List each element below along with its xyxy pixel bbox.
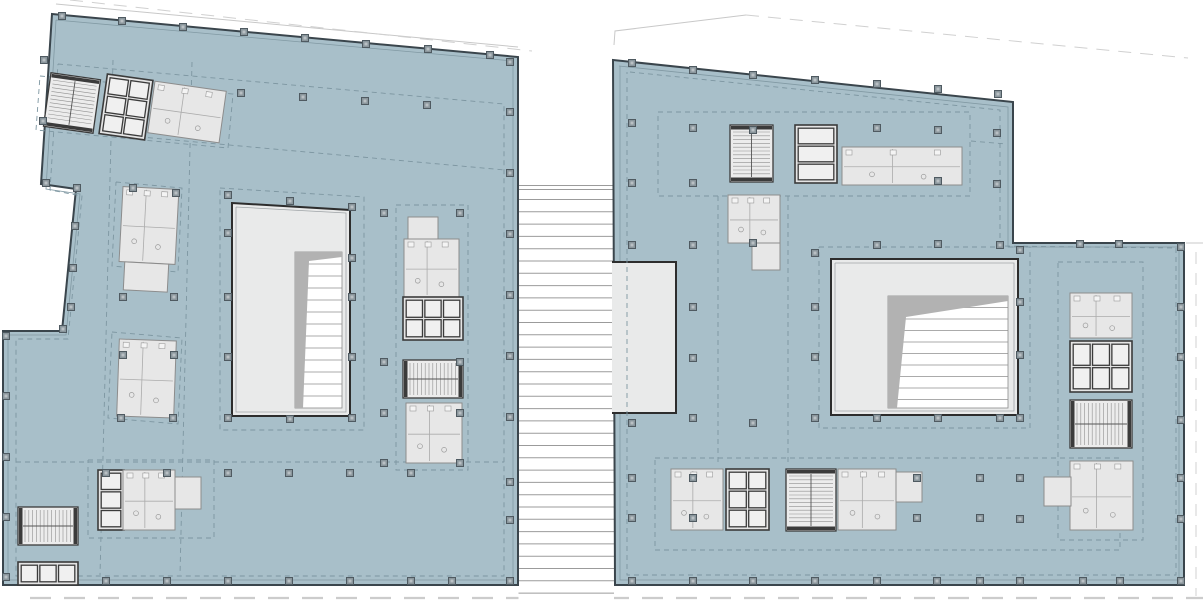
column-center: [997, 93, 1000, 96]
elevator-cab: [798, 164, 834, 180]
column-center: [692, 477, 695, 480]
column-center: [692, 69, 695, 72]
column-center: [426, 104, 429, 107]
restroom-core: [1070, 461, 1133, 530]
column-center: [5, 576, 8, 579]
fixture: [1074, 464, 1080, 469]
column-center: [509, 111, 512, 114]
column-center: [1019, 301, 1022, 304]
elevator-cab: [1093, 368, 1110, 389]
column-center: [1180, 580, 1183, 583]
elevator-cab: [123, 118, 144, 137]
column-center: [173, 296, 176, 299]
column-center: [814, 417, 817, 420]
column-center: [105, 472, 108, 475]
restroom-outline: [117, 339, 177, 418]
elevator-cab: [425, 300, 441, 317]
elevator-cab: [1112, 368, 1129, 389]
column-center: [120, 417, 123, 420]
column-center: [1180, 356, 1183, 359]
column-center: [752, 242, 755, 245]
column-center: [692, 517, 695, 520]
floor-plan-drawing: [0, 0, 1203, 602]
elevator-cab: [1093, 344, 1110, 365]
restroom-outline: [842, 147, 962, 185]
column-center: [459, 212, 462, 215]
stair-band-field: [519, 185, 615, 602]
elevator-cab: [1073, 344, 1090, 365]
restroom-core: [1070, 293, 1132, 338]
column-center: [62, 328, 65, 331]
elevator-cab: [129, 81, 150, 100]
column-center: [304, 37, 307, 40]
column-center: [459, 412, 462, 415]
column-center: [631, 517, 634, 520]
elevator-cab: [798, 128, 834, 144]
column-center: [227, 580, 230, 583]
elevator-core: [403, 297, 463, 340]
fixture: [445, 406, 451, 411]
column-center: [70, 306, 73, 309]
column-center: [876, 83, 879, 86]
room-block: [175, 477, 201, 509]
column-center: [509, 172, 512, 175]
column-center: [999, 244, 1002, 247]
column-center: [172, 417, 175, 420]
column-center: [166, 472, 169, 475]
column-center: [227, 417, 230, 420]
column-center: [166, 580, 169, 583]
restroom-core: [404, 239, 459, 297]
fixture: [1114, 296, 1120, 301]
elevator-cab: [444, 300, 460, 317]
fixture: [879, 472, 885, 477]
room-block: [123, 262, 168, 292]
column-center: [876, 244, 879, 247]
restroom-core: [117, 339, 177, 418]
stair-landing-bar: [731, 178, 772, 182]
column-center: [240, 92, 243, 95]
column-center: [1019, 417, 1022, 420]
stair-landing-bar: [74, 508, 78, 544]
elevator-cab: [444, 320, 460, 337]
column-center: [509, 61, 512, 64]
column-center: [351, 417, 354, 420]
fixture: [934, 150, 940, 155]
fixture: [141, 343, 147, 348]
column-center: [289, 200, 292, 203]
column-center: [692, 357, 695, 360]
column-center: [349, 580, 352, 583]
column-center: [1119, 580, 1122, 583]
restroom-core: [728, 195, 780, 243]
fixture: [890, 150, 896, 155]
column-center: [752, 129, 755, 132]
column-center: [5, 395, 8, 398]
fixture: [1115, 464, 1121, 469]
column-center: [132, 187, 135, 190]
restroom-core: [119, 187, 179, 265]
stair-landing-bar: [404, 361, 408, 397]
elevator-core: [726, 469, 769, 530]
atrium-void: [232, 203, 350, 416]
elevator-cab: [729, 491, 746, 508]
column-center: [5, 335, 8, 338]
column-center: [351, 296, 354, 299]
elevator-cab: [1073, 368, 1090, 389]
fixture: [707, 472, 713, 477]
column-center: [509, 481, 512, 484]
restroom-core: [123, 470, 175, 530]
stair-core: [1070, 400, 1132, 448]
elevator-core: [18, 562, 78, 585]
elevator-core: [98, 470, 124, 530]
column-center: [1019, 518, 1022, 521]
room-block: [408, 217, 438, 239]
stair-landing-bar: [787, 470, 835, 474]
fixture: [846, 150, 852, 155]
elevator-cab: [798, 146, 834, 162]
restroom-outline: [406, 403, 462, 463]
fixture: [162, 192, 168, 197]
column-center: [45, 182, 48, 185]
elevator-cab: [749, 472, 766, 489]
elevator-cab: [406, 300, 422, 317]
column-center: [692, 182, 695, 185]
elevator-cab: [749, 491, 766, 508]
column-center: [451, 580, 454, 583]
fixture: [1094, 296, 1100, 301]
room-outline: [408, 217, 438, 239]
column-center: [351, 356, 354, 359]
elevator-cab: [101, 511, 121, 527]
stair-core: [403, 360, 463, 398]
column-center: [365, 43, 368, 46]
column-center: [1019, 249, 1022, 252]
fixture: [442, 242, 448, 247]
column-center: [1180, 518, 1183, 521]
floor-plan-canvas: [0, 0, 1203, 602]
column-center: [631, 477, 634, 480]
column-center: [631, 182, 634, 185]
elevator-core: [99, 74, 153, 140]
fixture: [127, 473, 133, 478]
column-center: [996, 183, 999, 186]
column-center: [459, 361, 462, 364]
fixture: [860, 472, 866, 477]
elevator-cab: [21, 565, 37, 582]
column-center: [692, 244, 695, 247]
column-center: [227, 356, 230, 359]
fixture: [764, 198, 770, 203]
room-outline: [123, 262, 168, 292]
fixture: [206, 91, 213, 97]
stair-landing-bar: [1128, 401, 1132, 447]
column-center: [288, 580, 291, 583]
elevator-cab: [729, 510, 746, 527]
column-center: [122, 296, 125, 299]
column-center: [364, 100, 367, 103]
room-outline: [1044, 477, 1071, 506]
restroom-core: [148, 81, 227, 143]
atrium-void: [831, 259, 1018, 415]
column-center: [814, 252, 817, 255]
column-center: [752, 422, 755, 425]
column-center: [105, 580, 108, 583]
fixture: [748, 198, 754, 203]
column-center: [227, 472, 230, 475]
column-center: [876, 127, 879, 130]
restroom-outline: [838, 469, 896, 530]
column-center: [410, 580, 413, 583]
column-center: [227, 232, 230, 235]
column-center: [42, 120, 45, 123]
column-center: [509, 580, 512, 583]
fixture: [123, 342, 129, 347]
column-center: [383, 462, 386, 465]
column-center: [121, 20, 124, 23]
column-center: [631, 422, 634, 425]
edge-void: [612, 262, 676, 413]
elevator-cab: [40, 565, 56, 582]
column-center: [1180, 246, 1183, 249]
fixture: [410, 406, 416, 411]
central-exterior-stair: [519, 185, 615, 602]
column-center: [76, 187, 79, 190]
column-center: [459, 462, 462, 465]
column-center: [692, 580, 695, 583]
column-center: [937, 88, 940, 91]
column-center: [5, 456, 8, 459]
column-center: [876, 580, 879, 583]
column-center: [383, 212, 386, 215]
elevator-cab: [59, 565, 75, 582]
stair-core: [786, 469, 836, 531]
fixture: [143, 473, 149, 478]
column-center: [876, 417, 879, 420]
restroom-core: [838, 469, 896, 530]
fixture: [144, 191, 150, 196]
fixture: [675, 472, 681, 477]
stair-core: [43, 73, 100, 133]
column-center: [752, 580, 755, 583]
column-center: [752, 74, 755, 77]
elevator-cab: [105, 96, 126, 115]
fixture: [159, 343, 165, 348]
restroom-outline: [119, 187, 179, 265]
column-center: [631, 122, 634, 125]
column-center: [351, 206, 354, 209]
restroom-outline: [123, 470, 175, 530]
column-center: [916, 477, 919, 480]
column-center: [996, 132, 999, 135]
room-block: [752, 243, 780, 270]
elevator-core: [795, 125, 837, 183]
column-center: [692, 306, 695, 309]
elevator-cab: [1112, 344, 1129, 365]
column-center: [814, 356, 817, 359]
restroom-core: [842, 147, 962, 185]
column-center: [1082, 580, 1085, 583]
column-center: [916, 517, 919, 520]
fixture: [842, 472, 848, 477]
column-center: [692, 417, 695, 420]
column-center: [979, 517, 982, 520]
column-center: [814, 580, 817, 583]
column-center: [43, 59, 46, 62]
fixture: [428, 406, 434, 411]
column-center: [692, 127, 695, 130]
column-center: [5, 516, 8, 519]
column-center: [410, 472, 413, 475]
column-center: [383, 361, 386, 364]
column-center: [427, 48, 430, 51]
column-center: [631, 62, 634, 65]
column-center: [122, 354, 125, 357]
column-center: [61, 15, 64, 18]
fixture: [408, 242, 414, 247]
column-center: [979, 477, 982, 480]
column-center: [936, 580, 939, 583]
restroom-outline: [1070, 461, 1133, 530]
column-center: [1180, 306, 1183, 309]
column-center: [509, 355, 512, 358]
elevator-core: [1070, 341, 1132, 392]
column-center: [1019, 477, 1022, 480]
column-center: [1019, 354, 1022, 357]
column-center: [631, 580, 634, 583]
elevator-cab: [108, 78, 129, 97]
elevator-cab: [729, 472, 746, 489]
column-center: [937, 129, 940, 132]
column-center: [999, 417, 1002, 420]
fixture: [425, 242, 431, 247]
stair-landing-bar: [787, 527, 835, 531]
column-center: [72, 267, 75, 270]
fixture: [1094, 464, 1100, 469]
stair-landing-bar: [19, 508, 23, 544]
column-center: [1019, 580, 1022, 583]
column-center: [349, 472, 352, 475]
room-block: [1044, 477, 1071, 506]
elevator-cab: [406, 320, 422, 337]
column-center: [1079, 243, 1082, 246]
column-center: [383, 412, 386, 415]
column-center: [1180, 419, 1183, 422]
stair-core: [18, 507, 78, 545]
fixture: [158, 85, 165, 91]
column-center: [814, 79, 817, 82]
room-outline: [752, 243, 780, 270]
fixture: [182, 88, 189, 94]
west-tower: [3, 13, 519, 586]
column-center: [227, 194, 230, 197]
column-center: [227, 296, 230, 299]
restroom-outline: [404, 239, 459, 297]
column-center: [351, 257, 354, 260]
column-center: [1118, 243, 1121, 246]
restroom-core: [406, 403, 462, 463]
column-center: [937, 417, 940, 420]
column-center: [288, 472, 291, 475]
elevator-cab: [425, 320, 441, 337]
column-center: [937, 180, 940, 183]
column-center: [289, 418, 292, 421]
fixture: [732, 198, 738, 203]
column-center: [182, 26, 185, 29]
column-center: [509, 233, 512, 236]
column-center: [243, 31, 246, 34]
elevator-cab: [749, 510, 766, 527]
fixture: [1074, 296, 1080, 301]
column-center: [509, 416, 512, 419]
column-center: [631, 244, 634, 247]
column-center: [1180, 477, 1183, 480]
column-center: [979, 580, 982, 583]
column-center: [489, 54, 492, 57]
column-center: [814, 306, 817, 309]
stair-landing-bar: [1071, 401, 1075, 447]
column-center: [937, 243, 940, 246]
stair-landing-bar: [459, 361, 463, 397]
elevator-cab: [101, 492, 121, 508]
room-outline: [175, 477, 201, 509]
elevator-cab: [103, 115, 124, 134]
column-center: [509, 519, 512, 522]
column-center: [509, 294, 512, 297]
column-center: [175, 192, 178, 195]
column-center: [173, 354, 176, 357]
column-center: [74, 225, 77, 228]
elevator-cab: [126, 99, 147, 118]
column-center: [302, 96, 305, 99]
